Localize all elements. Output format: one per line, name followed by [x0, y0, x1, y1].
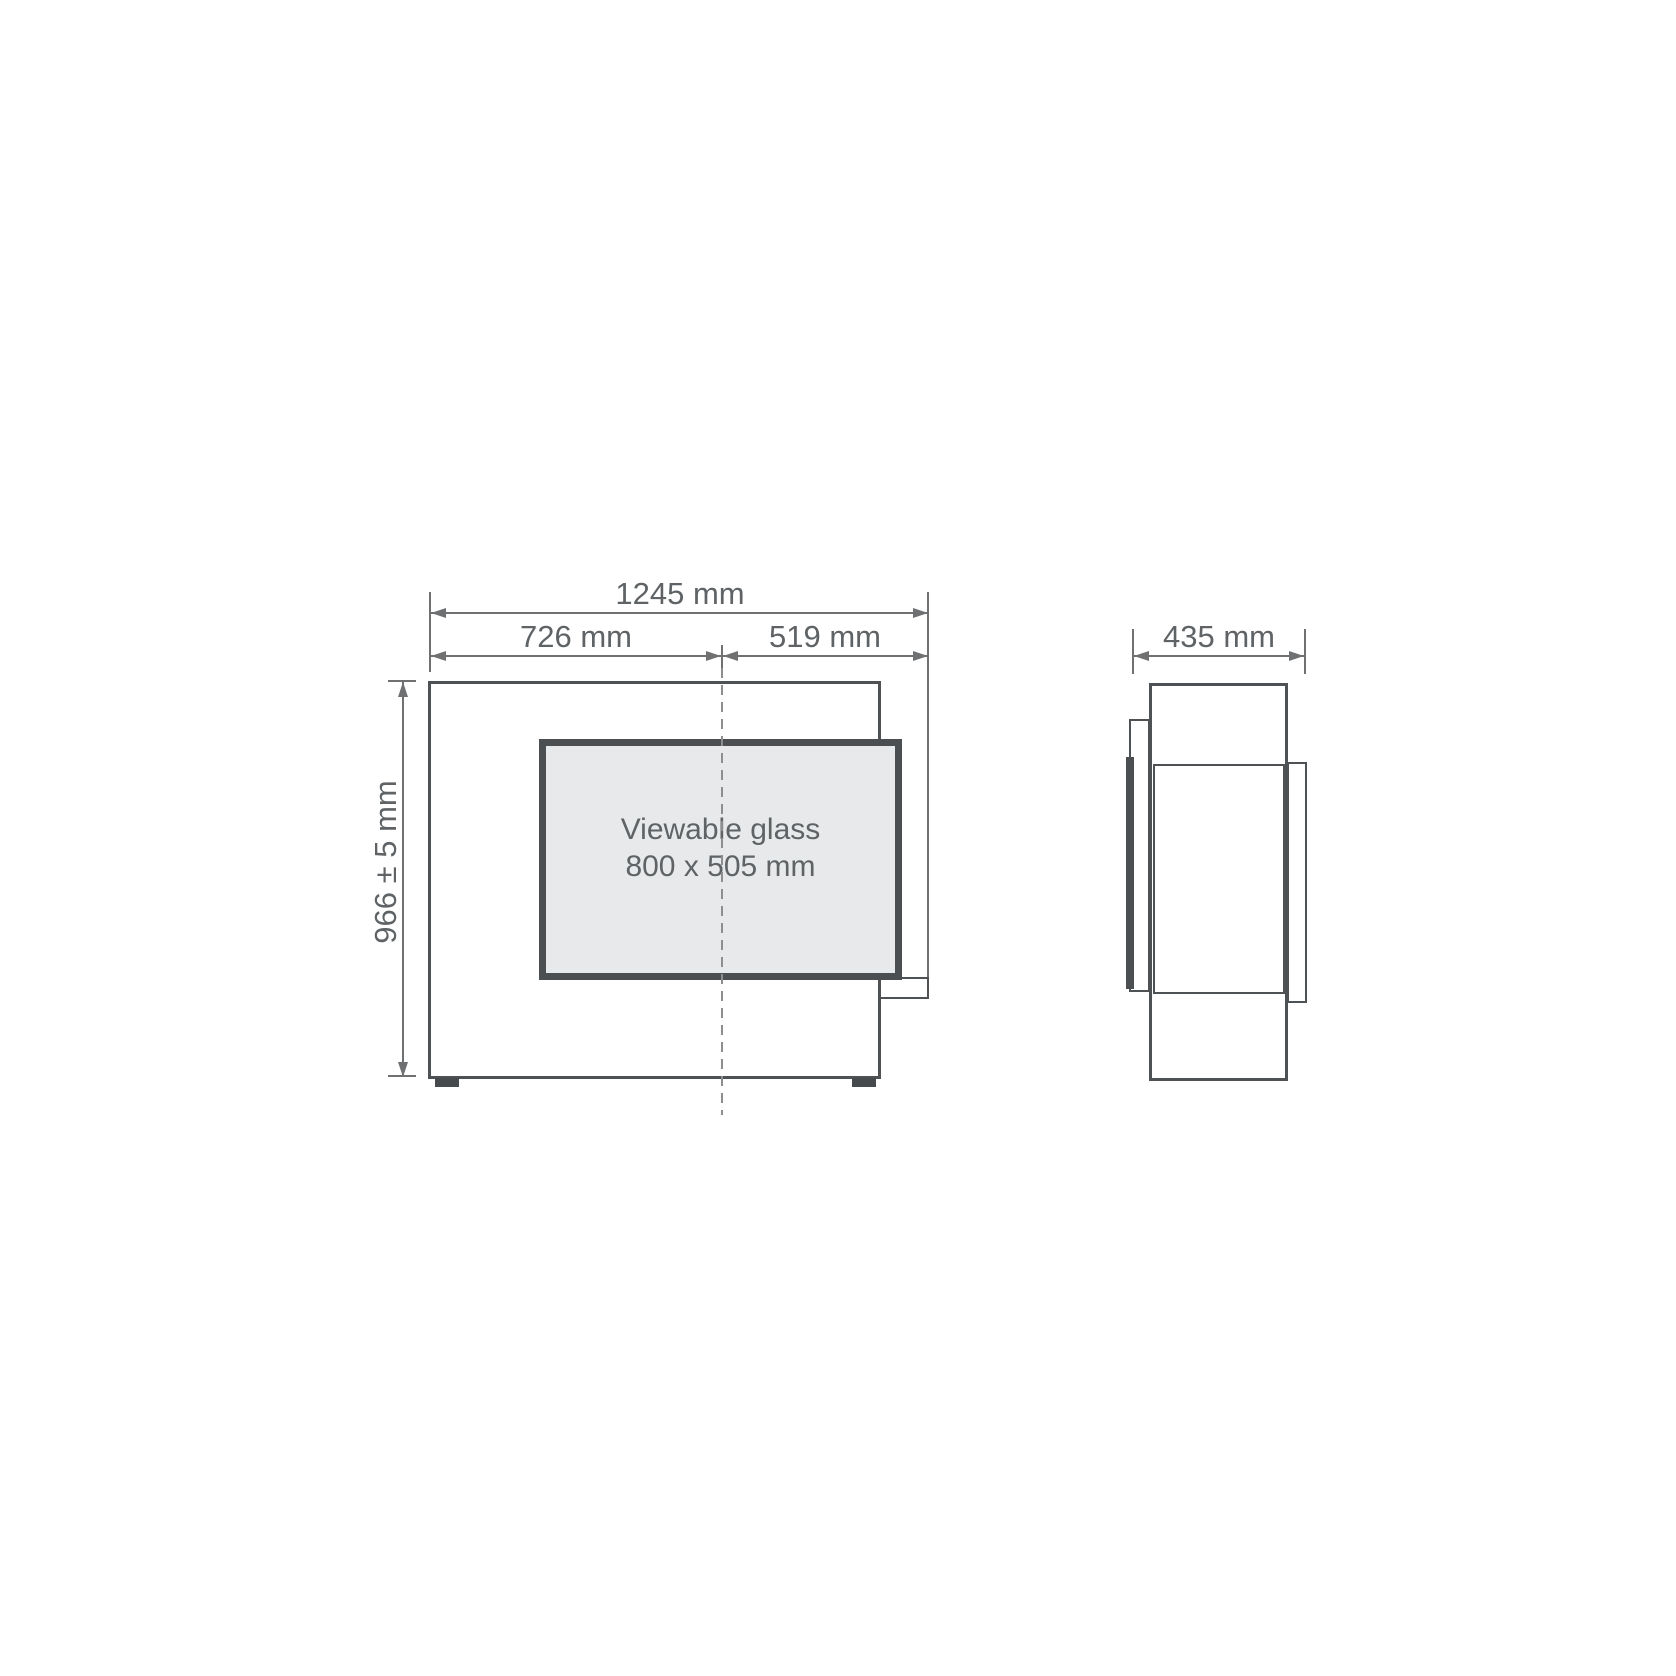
side-rear-strip: [1287, 762, 1307, 1003]
height-extension-tick-bottom: [388, 1075, 416, 1077]
height-extension-tick-top: [388, 680, 416, 682]
total-width-arrow-right: [913, 608, 928, 618]
front-right-step-ledge: [878, 977, 929, 999]
height-arrow-top: [398, 682, 408, 697]
right-width-dimension-line: [723, 655, 928, 657]
depth-label: 435 mm: [1069, 621, 1369, 653]
centerline-tick: [721, 645, 723, 668]
left-width-dimension-line: [431, 655, 721, 657]
technical-dimension-drawing: 1245 mm 726 mm 519 mm Viewable glass 800…: [0, 0, 1676, 1676]
centerline-dashed: [721, 668, 723, 1115]
front-foot-right: [852, 1078, 876, 1087]
total-width-arrow-left: [431, 608, 446, 618]
front-foot-left: [435, 1078, 459, 1087]
side-front-glass-edge: [1126, 757, 1134, 989]
total-width-dimension-line: [431, 612, 928, 614]
side-inner-box-outline: [1153, 764, 1285, 994]
total-width-label: 1245 mm: [530, 578, 830, 610]
height-label: 966 ± 5 mm: [369, 722, 403, 1002]
right-width-label: 519 mm: [675, 621, 975, 653]
depth-dimension-line: [1134, 655, 1306, 657]
